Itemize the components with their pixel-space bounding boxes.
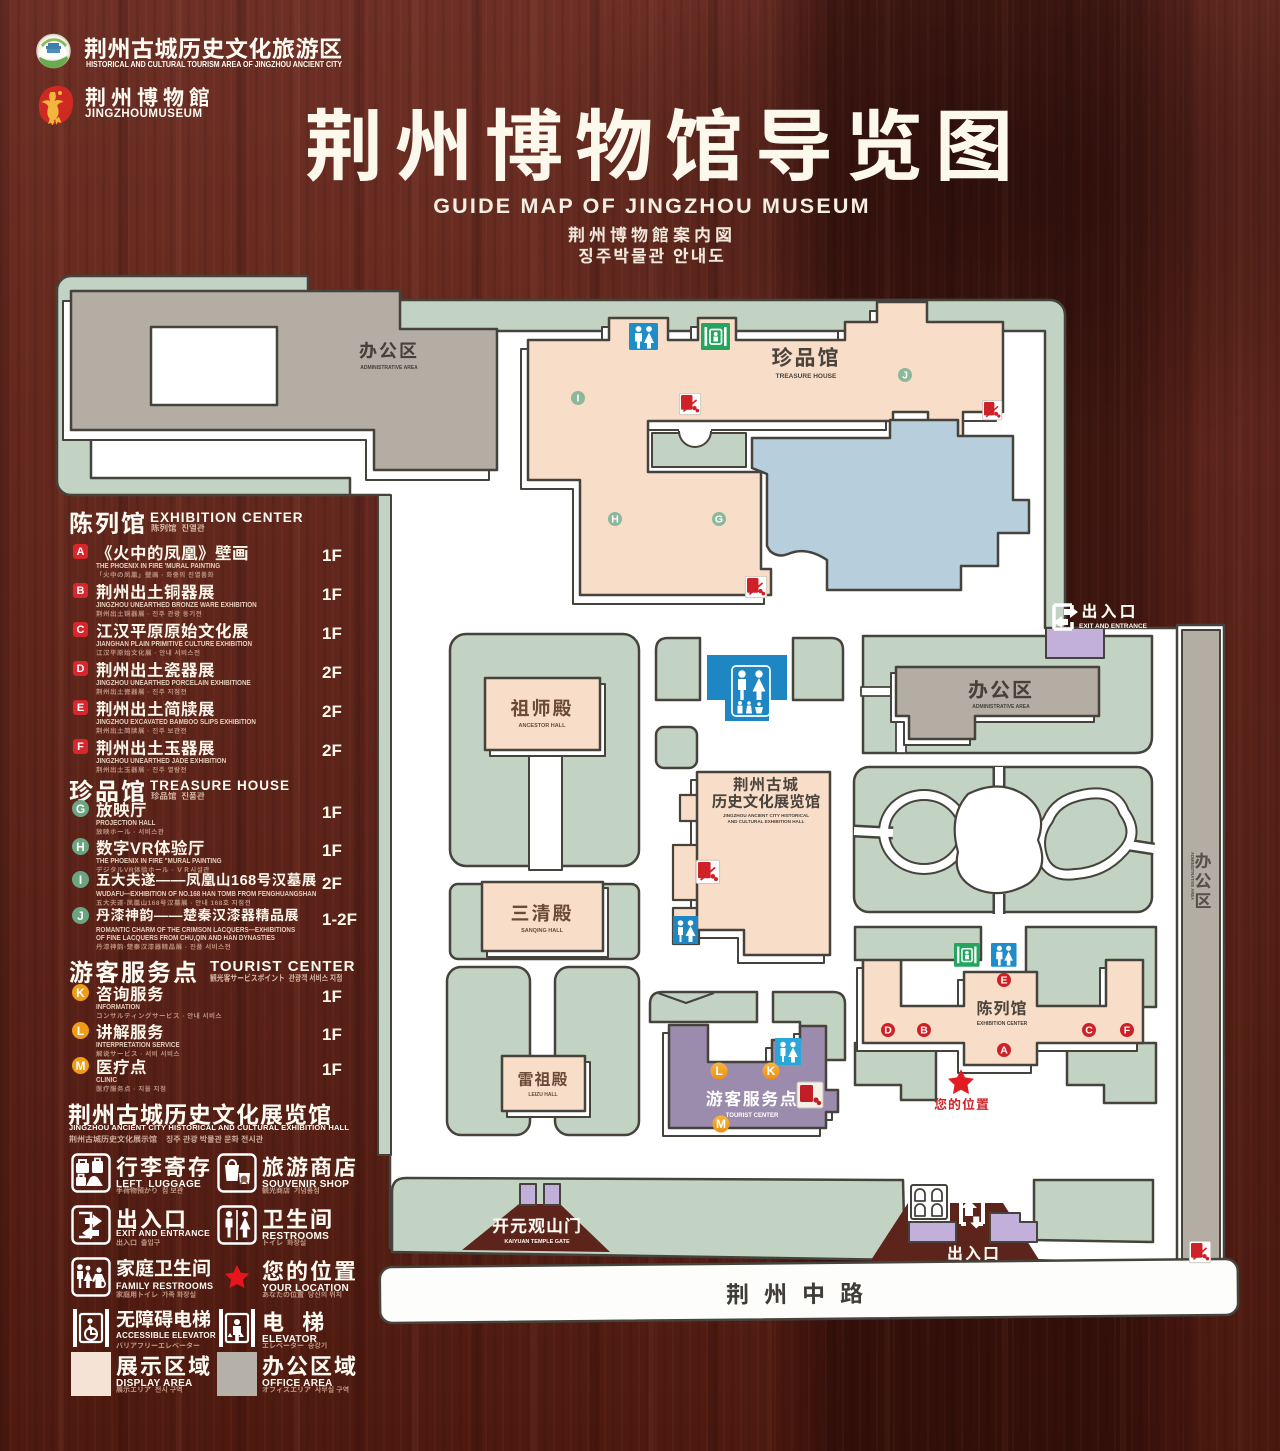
svg-text:J: J [902, 368, 908, 383]
svg-text:SANQING HALL: SANQING HALL [521, 926, 564, 934]
svg-text:M: M [716, 1115, 726, 1132]
svg-text:H: H [611, 512, 619, 527]
svg-text:EXHIBITION CENTER: EXHIBITION CENTER [977, 1020, 1028, 1027]
svg-text:E: E [1000, 973, 1007, 988]
svg-text:雷祖殿: 雷祖殿 [517, 1066, 568, 1090]
svg-text:ADMINISTRATIVE AREA: ADMINISTRATIVE AREA [360, 364, 418, 371]
svg-text:您的位置: 您的位置 [934, 1094, 990, 1113]
svg-text:历史文化展览馆: 历史文化展览馆 [712, 790, 821, 812]
svg-text:办公区: 办公区 [968, 674, 1034, 703]
svg-text:TOURIST CENTER: TOURIST CENTER [726, 1110, 779, 1119]
svg-text:I: I [577, 391, 580, 406]
svg-text:B: B [920, 1023, 928, 1038]
svg-text:F: F [1124, 1023, 1131, 1038]
svg-text:游客服务点: 游客服务点 [706, 1085, 799, 1110]
svg-text:KAIYUAN TEMPLE GATE: KAIYUAN TEMPLE GATE [504, 1237, 570, 1245]
svg-text:ADMINISTRATIVE AREA: ADMINISTRATIVE AREA [1189, 852, 1195, 900]
svg-text:珍品馆: 珍品馆 [772, 342, 841, 372]
svg-text:C: C [1085, 1023, 1093, 1038]
svg-text:LEIZU HALL: LEIZU HALL [528, 1091, 557, 1098]
svg-text:D: D [884, 1023, 892, 1038]
svg-text:L: L [715, 1062, 722, 1079]
svg-text:办公区: 办公区 [359, 337, 419, 363]
svg-text:A: A [1000, 1043, 1008, 1058]
svg-text:荆州中路: 荆州中路 [726, 1274, 878, 1309]
svg-text:K: K [767, 1062, 776, 1079]
svg-text:开元观山门: 开元观山门 [492, 1212, 582, 1237]
svg-text:祖师殿: 祖师殿 [510, 694, 573, 721]
svg-text:三清殿: 三清殿 [510, 899, 573, 926]
svg-text:G: G [715, 512, 723, 527]
svg-text:陈列馆: 陈列馆 [976, 995, 1027, 1019]
svg-text:TREASURE HOUSE: TREASURE HOUSE [776, 370, 837, 380]
svg-text:EXIT AND ENTRANCE: EXIT AND ENTRANCE [1079, 620, 1148, 630]
svg-text:ANCESTOR HALL: ANCESTOR HALL [519, 721, 567, 729]
svg-text:ADMINISTRATIVE AREA: ADMINISTRATIVE AREA [972, 703, 1030, 710]
svg-text:AND CULTURAL EXHIBITION HALL: AND CULTURAL EXHIBITION HALL [728, 819, 805, 825]
svg-text:出入口: 出入口 [1081, 598, 1138, 622]
